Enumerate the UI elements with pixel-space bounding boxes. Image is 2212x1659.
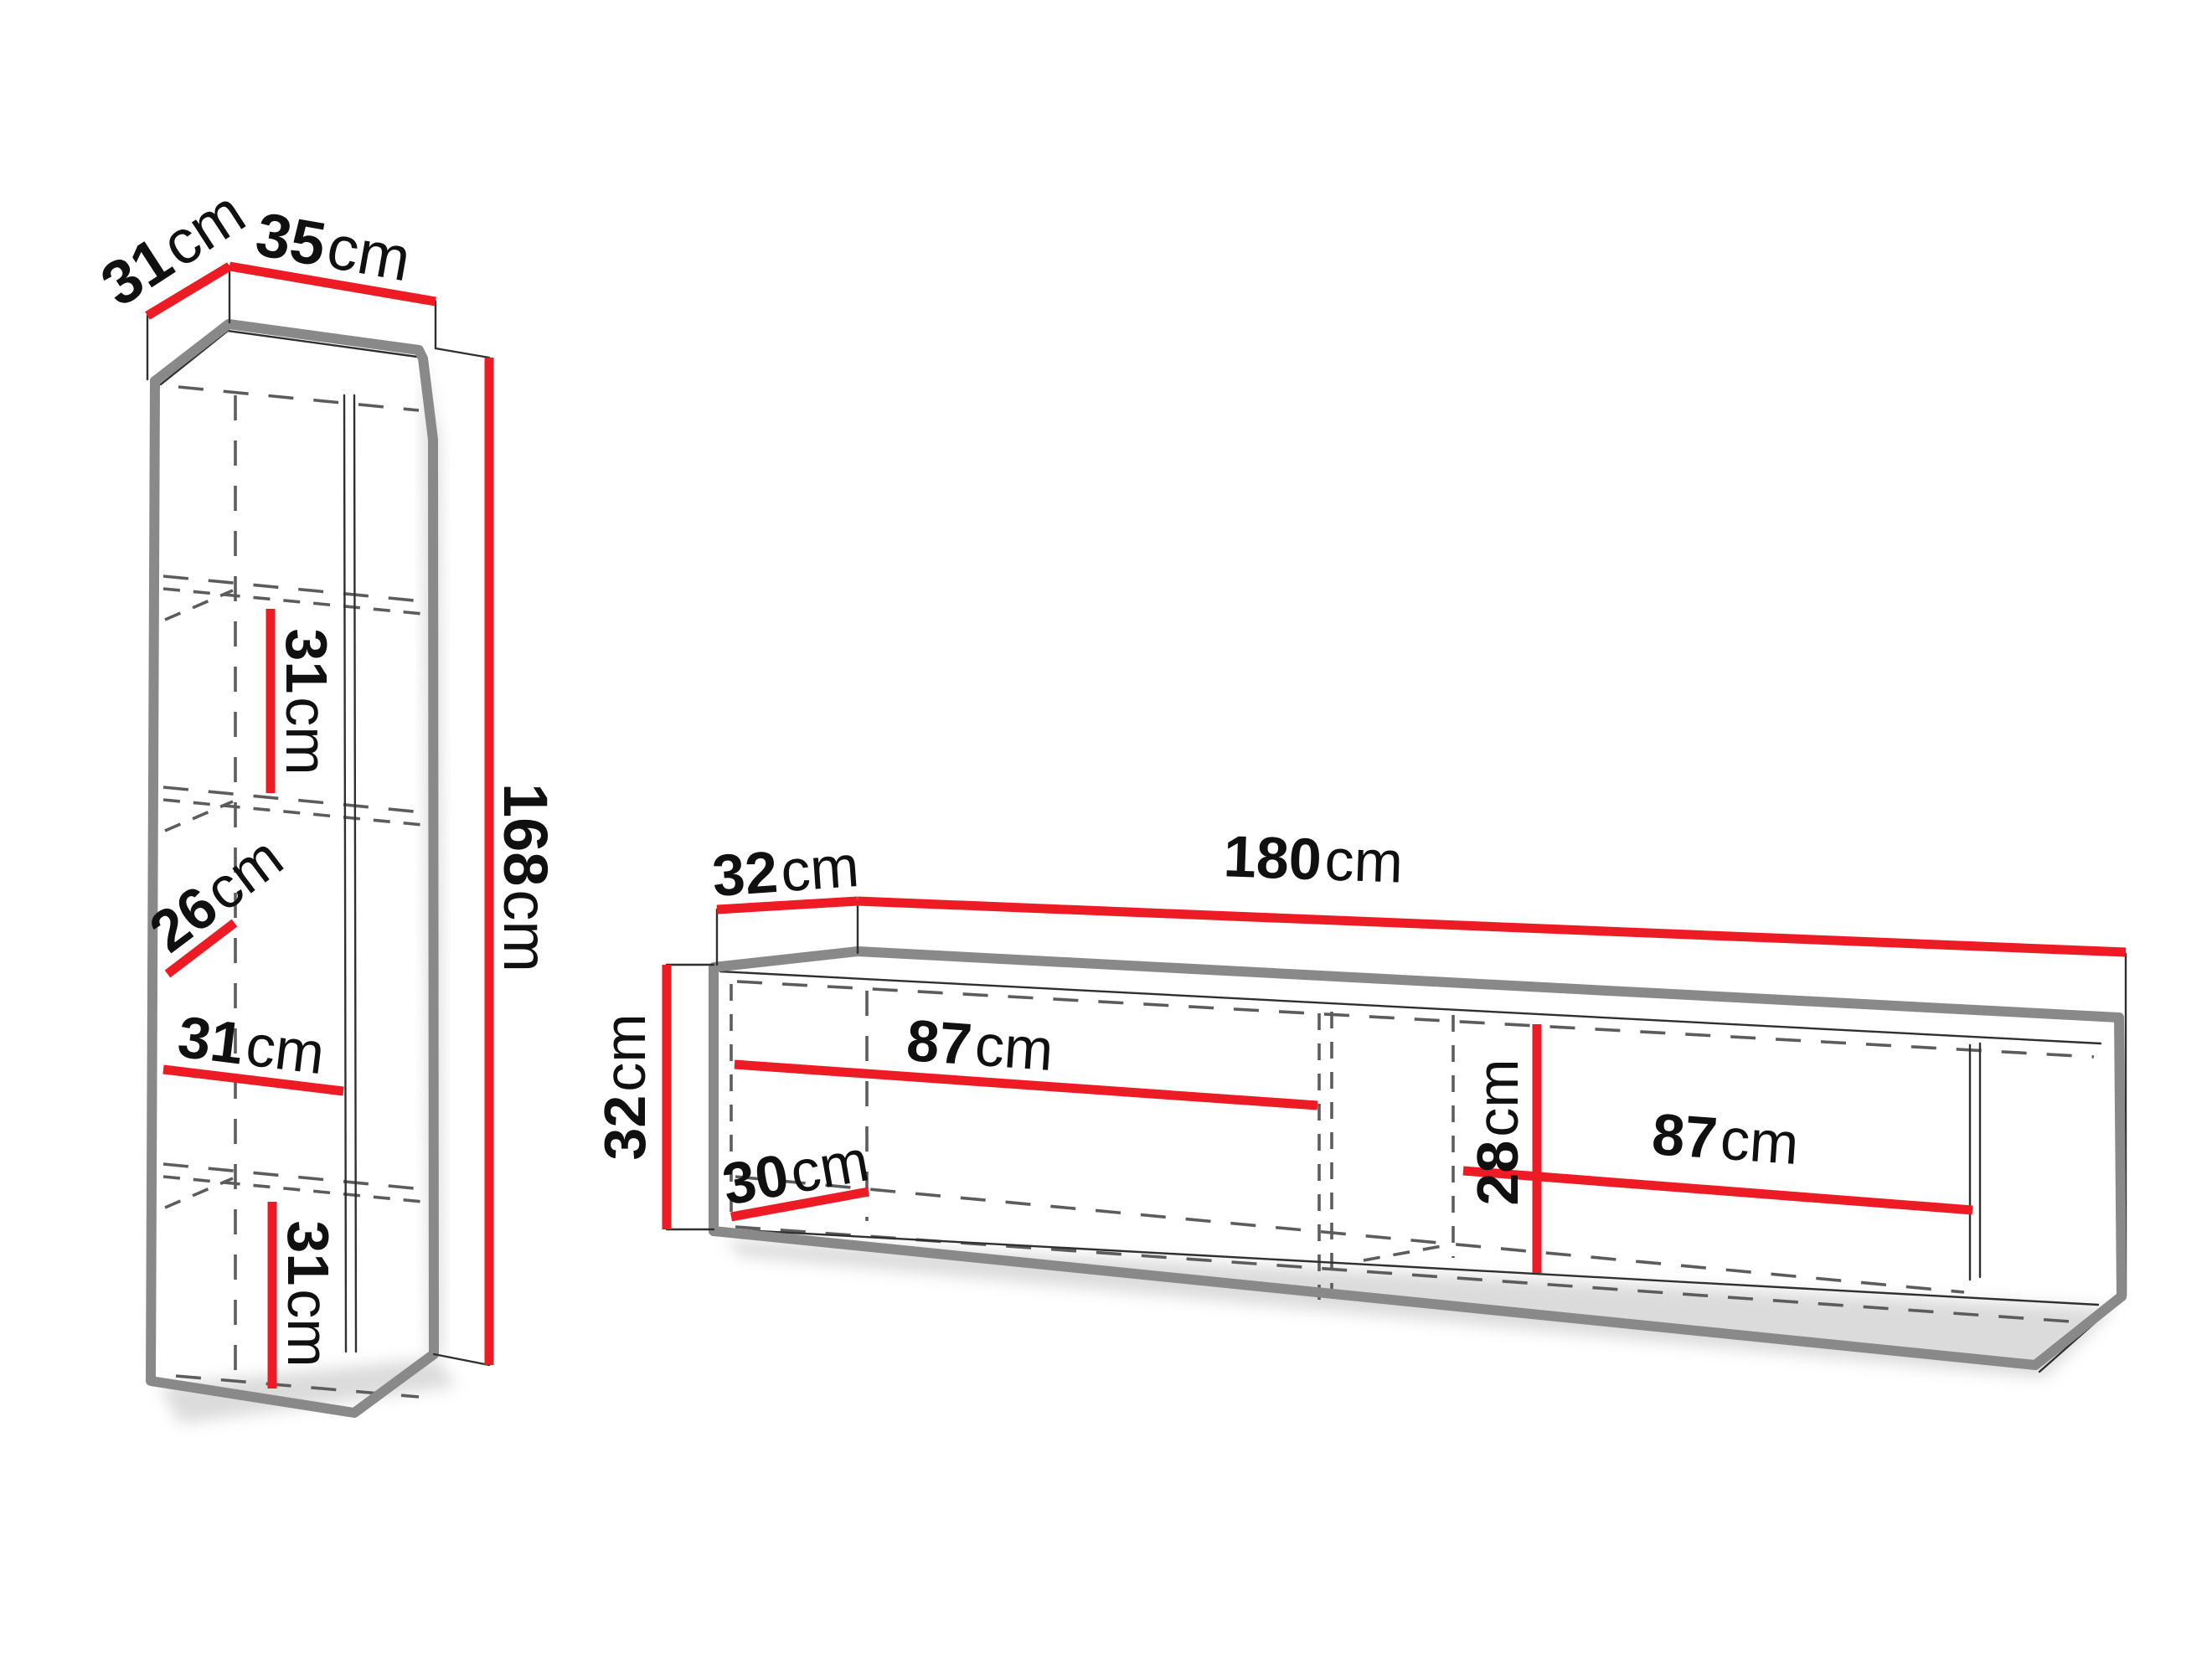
left-cabinet-depth-dash-3 (165, 1178, 233, 1208)
right-cabinet-dimensions: 32cm 180cm 32cm 87cm 30cm 28cm 87cm (592, 823, 2126, 1273)
ext-left-height-bottom (434, 1354, 489, 1365)
left-cabinet-outline-top-right (155, 324, 434, 1354)
left-cabinet-shelf3-dashed-b (163, 1177, 423, 1202)
left-cabinet: 31cm 35cm 168cm 31cm 26cm 31cm 31cm (89, 177, 561, 1424)
left-cabinet-depth-dash-2 (165, 801, 233, 831)
label-right-width: 180cm (1223, 823, 1405, 894)
left-cabinet-shelf1-dashed-a (163, 576, 423, 601)
left-cabinet-door-edge-1 (344, 395, 346, 1352)
label-shelf-bottom: 31cm (276, 1220, 341, 1367)
left-cabinet-door-edge-2 (354, 395, 356, 1352)
right-cabinet-outline-top (714, 951, 2122, 1296)
label-inner-depth: 30cm (718, 1127, 874, 1217)
left-cabinet-dimensions: 31cm 35cm 168cm 31cm 26cm 31cm 31cm (89, 177, 561, 1389)
left-cabinet-depth-dash-1 (165, 590, 233, 620)
label-left-height: 168cm (492, 783, 561, 972)
label-inner-left-width: 87cm (905, 1007, 1055, 1083)
left-cabinet-shelf1-dashed-b (163, 589, 423, 614)
label-left-width: 35cm (251, 198, 416, 294)
label-right-depth: 32cm (710, 833, 861, 909)
ext-left-width (436, 301, 489, 358)
left-cabinet-shelf2-dashed-a (163, 787, 423, 812)
label-inner-height: 28cm (1465, 1059, 1530, 1205)
left-cabinet-top-underside-dashed (178, 387, 419, 410)
dimension-diagram: 31cm 35cm 168cm 31cm 26cm 31cm 31cm (0, 0, 2212, 1659)
label-inner-right-width: 87cm (1650, 1101, 1801, 1177)
right-cabinet: 32cm 180cm 32cm 87cm 30cm 28cm 87cm (592, 823, 2126, 1378)
label-shelf-top: 31cm (274, 628, 339, 775)
left-cabinet-shelf3-dashed-a (163, 1164, 423, 1189)
right-cabinet-bottom-diagonal-dashed (1364, 1244, 1451, 1260)
dim-line-right-width-180 (858, 901, 2126, 952)
diagram-canvas: 31cm 35cm 168cm 31cm 26cm 31cm 31cm (0, 0, 2212, 1659)
left-cabinet-top-slab-inner-edge (161, 331, 417, 384)
left-cabinet-shelf2-dashed-b (163, 800, 423, 825)
label-right-height: 32cm (592, 1013, 657, 1160)
label-shelf-depth: 26cm (138, 824, 295, 965)
